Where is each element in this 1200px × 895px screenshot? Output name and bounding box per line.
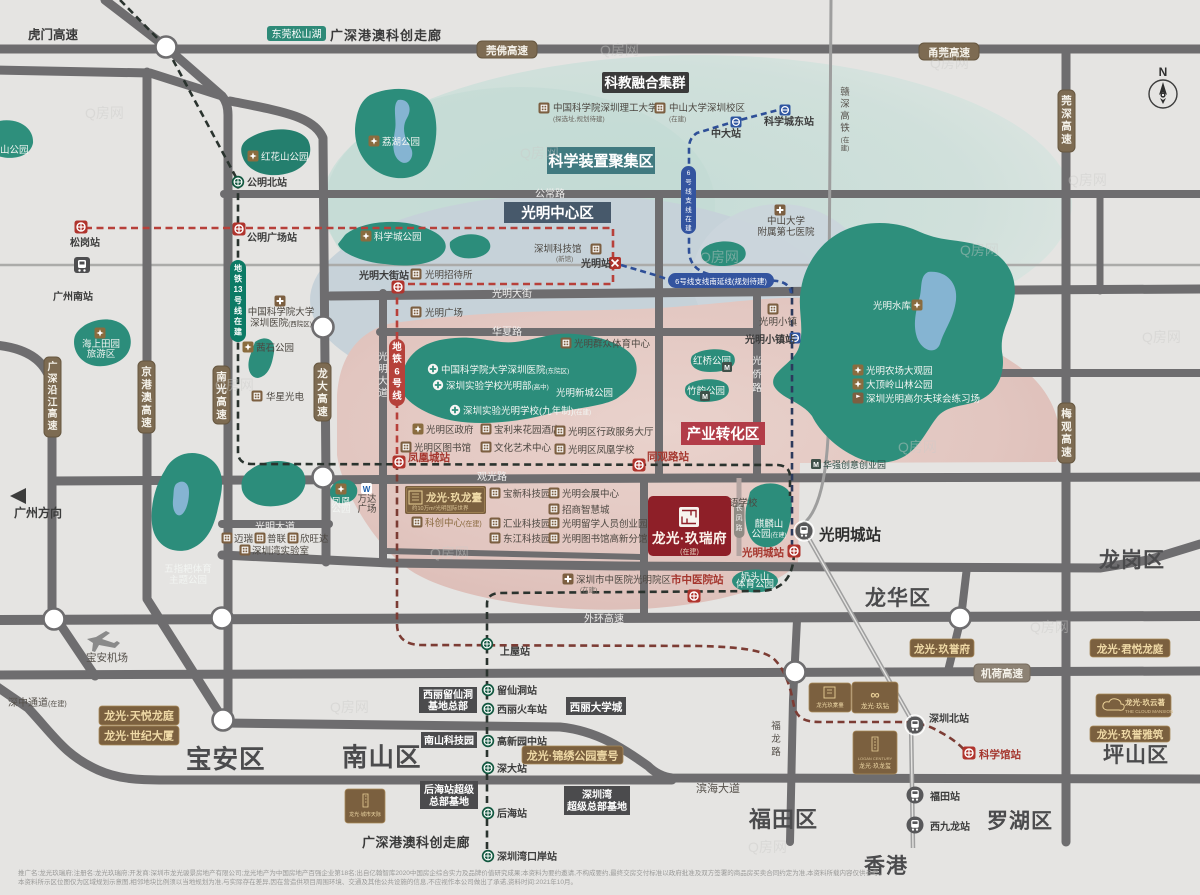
svg-text:滨海大道: 滨海大道 [696,781,740,795]
svg-text:宝利来花园酒店: 宝利来花园酒店 [494,424,561,436]
svg-text:龙光·玖瑞府: 龙光·玖瑞府 [651,530,727,546]
svg-text:科学装置聚集区: 科学装置聚集区 [548,152,653,170]
svg-text:外环高速: 外环高速 [584,612,624,625]
svg-text:光明留学人员创业园: 光明留学人员创业园 [562,518,648,530]
svg-text:光明大道: 光明大道 [255,520,295,533]
svg-text:龙光·天悦龙庭: 龙光·天悦龙庭 [103,709,174,723]
svg-text:光明大街: 光明大街 [492,287,532,300]
svg-text:深圳湾口岸站: 深圳湾口岸站 [497,850,557,863]
svg-text:留仙洞站: 留仙洞站 [497,684,537,697]
svg-text:宝安机场: 宝安机场 [86,651,128,664]
svg-text:龙光·玖誉雅筑: 龙光·玖誉雅筑 [1096,728,1164,741]
svg-text:龙光·玖龙臺: 龙光·玖龙臺 [425,491,482,504]
svg-text:(探选址,规划待建): (探选址,规划待建) [553,114,605,123]
svg-text:龙光·锦绣公园壹号: 龙光·锦绣公园壹号 [526,749,619,763]
svg-text:上屋站: 上屋站 [500,645,530,658]
svg-text:光明大街站: 光明大街站 [358,269,409,282]
svg-text:招商智慧城: 招商智慧城 [562,504,610,516]
svg-text:(在建): (在建) [841,135,850,152]
svg-text:(在建): (在建) [680,547,699,556]
svg-text:观光路: 观光路 [477,470,507,483]
svg-text:光明小镇站: 光明小镇站 [744,333,795,346]
svg-text:广州方向: 广州方向 [14,505,62,520]
svg-text:光明城站: 光明城站 [741,546,784,559]
svg-text:龙大高速: 龙大高速 [316,367,328,418]
svg-text:光明中心区: 光明中心区 [520,204,594,222]
svg-text:山公园: 山公园 [0,145,29,156]
svg-text:产业转化区: 产业转化区 [687,425,760,443]
svg-text:东江科技园: 东江科技园 [503,533,551,545]
svg-text:光明小镇: 光明小镇 [759,316,798,328]
svg-text:龙光·玖誉府: 龙光·玖誉府 [913,643,970,656]
svg-text:茜石公园: 茜石公园 [256,343,294,354]
svg-text:光明广场: 光明广场 [425,307,463,319]
svg-text:虎门高速: 虎门高速 [28,27,79,42]
svg-text:福田站: 福田站 [929,790,960,803]
svg-text:龙华区: 龙华区 [865,586,931,610]
svg-text:龙光·玖龙玺: 龙光·玖龙玺 [859,762,891,770]
svg-text:光明新城公园: 光明新城公园 [556,387,613,399]
svg-text:Q房网: Q房网 [1068,172,1107,188]
svg-text:汇业科技园: 汇业科技园 [503,518,551,530]
svg-text:坪山区: 坪山区 [1103,744,1169,767]
svg-text:迈瑞: 迈瑞 [234,533,254,545]
svg-text:6号线支线在建: 6号线支线在建 [685,170,692,232]
svg-text:东莞松山湖: 东莞松山湖 [272,28,322,41]
svg-text:公明北站: 公明北站 [247,176,287,189]
svg-text:深圳湾: 深圳湾 [582,788,612,801]
svg-text:南山区: 南山区 [342,744,422,772]
svg-text:总部基地: 总部基地 [429,795,469,808]
svg-text:福龙路: 福龙路 [771,720,781,758]
svg-text:THE CLOUD MANSION: THE CLOUD MANSION [1125,709,1173,714]
svg-text:福田区: 福田区 [748,807,818,832]
svg-text:光侨路: 光侨路 [752,355,762,394]
svg-text:光明水库: 光明水库 [873,300,912,312]
svg-text:后海站超级: 后海站超级 [424,783,475,796]
svg-text:南山科技园: 南山科技园 [424,734,474,747]
svg-text:机荷高速: 机荷高速 [981,667,1023,680]
svg-text:W: W [363,485,371,494]
svg-text:(新馆): (新馆) [556,254,573,263]
svg-text:龙光玖棠臺: 龙光玖棠臺 [816,701,844,709]
svg-text:梅观高速: 梅观高速 [1061,407,1072,458]
svg-text:Q房网: Q房网 [1030,619,1069,635]
svg-text:光明站: 光明站 [580,257,611,270]
svg-text:Q房网: Q房网 [748,839,787,855]
svg-text:中国科学院大学: 中国科学院大学 [248,306,315,318]
svg-text:Q房网: Q房网 [960,242,999,258]
svg-text:主题公园: 主题公园 [169,574,207,586]
svg-text:∞: ∞ [870,687,879,702]
svg-text:科学馆站: 科学馆站 [979,748,1021,761]
svg-text:龙光·玖云著: 龙光·玖云著 [1125,697,1165,707]
svg-text:宝新科技园: 宝新科技园 [503,488,551,500]
svg-text:Q房网: Q房网 [215,377,254,393]
svg-text:Q房网: Q房网 [930,55,969,71]
svg-text:京港澳高速: 京港澳高速 [141,365,152,429]
svg-text:附属第七医院: 附属第七医院 [757,226,815,238]
svg-text:深圳市中医院光明院区: 深圳市中医院光明院区 [576,574,672,586]
svg-text:光明群众体育中心: 光明群众体育中心 [574,338,651,350]
svg-text:龙光·城市天际: 龙光·城市天际 [349,811,381,818]
svg-text:光明会展中心: 光明会展中心 [562,488,620,500]
svg-text:光明城站: 光明城站 [818,525,882,544]
svg-text:公园: 公园 [331,504,350,515]
svg-text:龙岗区: 龙岗区 [1099,548,1165,572]
svg-text:红花山公园: 红花山公园 [261,151,309,163]
svg-text:光明区凤凰学校: 光明区凤凰学校 [568,444,635,456]
svg-text:西九龙站: 西九龙站 [930,820,970,833]
svg-text:欣旺达: 欣旺达 [300,533,329,545]
svg-text:深圳科技馆: 深圳科技馆 [534,243,582,255]
svg-text:同观路站: 同观路站 [647,450,689,463]
svg-text:基地总部: 基地总部 [427,700,468,713]
svg-text:莞深高速: 莞深高速 [1060,94,1072,145]
svg-text:五指耙体育: 五指耙体育 [164,563,212,575]
svg-text:西丽留仙洞: 西丽留仙洞 [423,688,473,701]
svg-text:推广名:龙光玖瑞府;注册名:龙光玖瑞府;开发商:深圳市龙光骏: 推广名:龙光玖瑞府;注册名:龙光玖瑞府;开发商:深圳市龙光骏景房地产有限公司;龙… [18,868,885,877]
svg-text:光明区政府: 光明区政府 [426,424,474,436]
svg-text:中山大学: 中山大学 [767,215,805,227]
svg-text:广深港澳科创走廊: 广深港澳科创走廊 [362,835,470,850]
svg-text:光明区图书馆: 光明区图书馆 [414,442,471,454]
svg-text:体育公园: 体育公园 [736,578,774,590]
svg-text:本资料所示区位图仅为区域规划示意图,相邻地块比例须以当地规划: 本资料所示区位图仅为区域规划示意图,相邻地块比例须以当地规划为准,与实际存在差异… [18,877,577,886]
svg-text:荔湖公园: 荔湖公园 [382,136,420,148]
svg-text:科教融合集群: 科教融合集群 [605,75,686,91]
svg-text:西丽大学城: 西丽大学城 [570,701,623,714]
svg-text:龙光·玖钻: 龙光·玖钻 [861,701,890,710]
svg-text:华星光电: 华星光电 [266,391,305,403]
svg-text:地铁13号线在建: 地铁13号线在建 [233,263,243,337]
svg-text:Q房网: Q房网 [85,105,124,121]
svg-text:大顶岭山林公园: 大顶岭山林公园 [866,379,933,391]
svg-text:Q房网: Q房网 [898,439,937,455]
svg-text:莞佛高速: 莞佛高速 [485,44,528,57]
svg-text:深大站: 深大站 [497,762,527,775]
svg-text:广州南站: 广州南站 [53,290,93,303]
svg-text:公明广场站: 公明广场站 [247,231,297,244]
svg-text:普联: 普联 [267,533,287,545]
svg-text:Q房网: Q房网 [700,249,739,265]
svg-text:华强创意创业园: 华强创意创业园 [823,459,886,470]
svg-text:光明招待所: 光明招待所 [425,269,473,281]
svg-text:华夏路: 华夏路 [492,325,522,338]
svg-text:Q房网: Q房网 [330,699,369,715]
svg-text:Q房网: Q房网 [600,42,639,58]
svg-text:龙光·君悦龙庭: 龙光·君悦龙庭 [1096,643,1164,656]
svg-text:N: N [1159,65,1168,79]
svg-text:光明农场大观园: 光明农场大观园 [866,365,933,377]
svg-text:罗湖区: 罗湖区 [987,810,1053,833]
svg-text:松岗站: 松岗站 [70,236,100,249]
svg-text:龙光·世纪大厦: 龙光·世纪大厦 [103,729,175,743]
svg-text:后海站: 后海站 [497,807,527,820]
svg-text:(在建): (在建) [580,585,597,594]
svg-text:超级总部基地: 超级总部基地 [566,800,627,813]
svg-text:广场: 广场 [357,503,376,515]
svg-text:(在建): (在建) [669,114,686,123]
svg-text:光明图书馆高新分馆: 光明图书馆高新分馆 [562,533,648,545]
svg-text:广深港澳科创走廊: 广深港澳科创走廊 [330,28,442,43]
svg-text:中大站: 中大站 [711,127,741,140]
svg-text:约10万m²光明国际世界: 约10万m²光明国际世界 [412,504,469,512]
svg-text:Q房网: Q房网 [1142,329,1181,345]
svg-text:宝安区: 宝安区 [186,745,266,774]
svg-text:西丽火车站: 西丽火车站 [497,703,547,716]
svg-text:市中医院站: 市中医院站 [671,573,724,586]
svg-text:深圳实验光明学校(九年制)(在建): 深圳实验光明学校(九年制)(在建) [463,405,591,417]
svg-text:6号线支线南延线(规划待建): 6号线支线南延线(规划待建) [675,276,767,286]
svg-text:Q房网: Q房网 [430,545,469,561]
svg-text:广深沿江高速: 广深沿江高速 [48,360,58,432]
svg-text:中国科学院深圳理工大学: 中国科学院深圳理工大学 [553,102,658,114]
svg-text:深圳湾实验室: 深圳湾实验室 [252,545,309,557]
svg-text:文化艺术中心: 文化艺术中心 [494,442,552,454]
svg-text:Q房网: Q房网 [520,145,559,161]
svg-text:旅游区: 旅游区 [87,348,116,360]
svg-text:深圳北站: 深圳北站 [929,712,969,725]
svg-text:科学城东站: 科学城东站 [764,115,814,128]
svg-text:光明区行政服务大厅: 光明区行政服务大厅 [568,426,654,438]
svg-text:深圳光明高尔夫球会练习场: 深圳光明高尔夫球会练习场 [866,393,980,405]
svg-text:科学城公园: 科学城公园 [374,231,422,243]
svg-text:中山大学深圳校区: 中山大学深圳校区 [669,102,746,114]
svg-text:公常路: 公常路 [535,187,565,200]
svg-text:LOGAN CENTURY: LOGAN CENTURY [858,756,893,761]
